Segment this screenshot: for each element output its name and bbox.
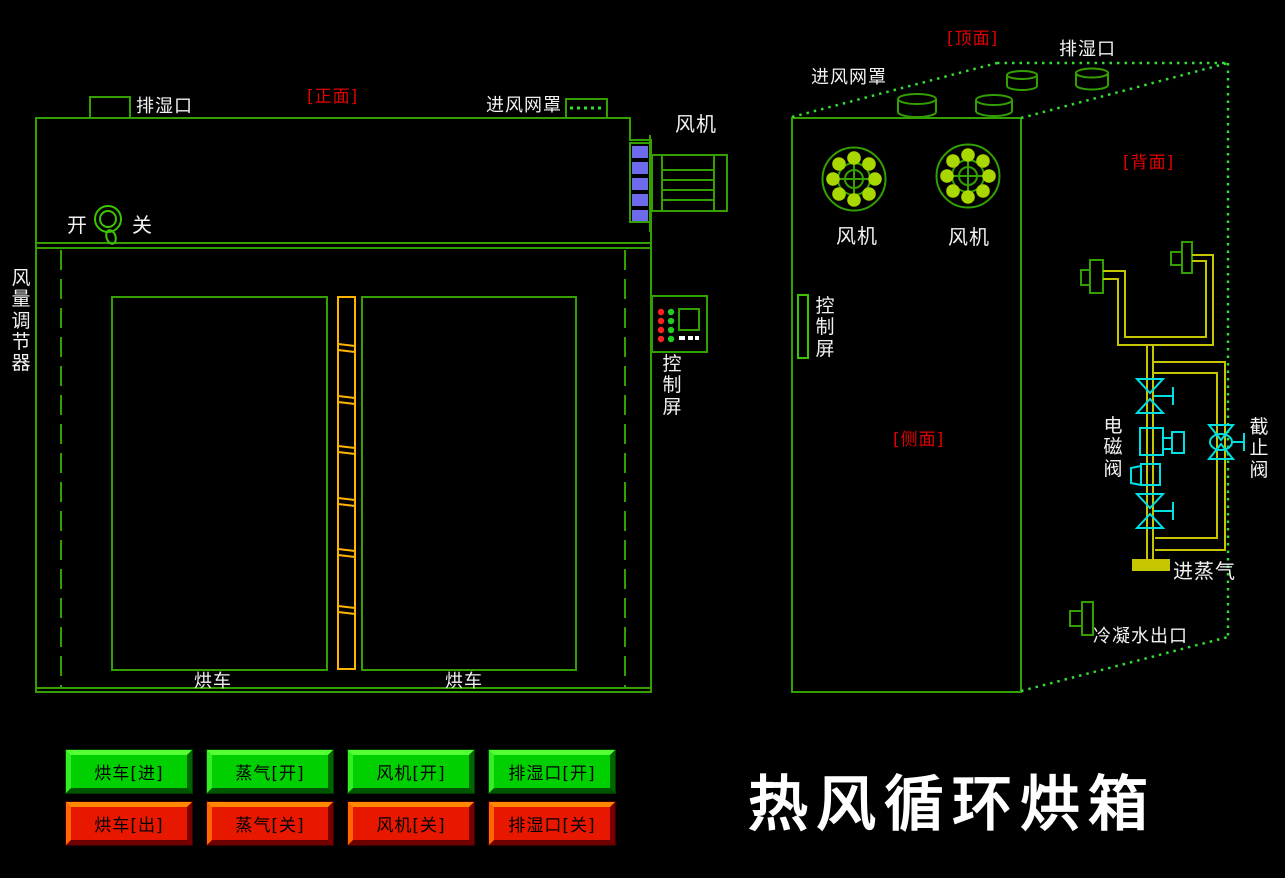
cart-left-label: 烘车 <box>194 667 232 693</box>
roof-cylinders <box>898 69 1108 118</box>
front-inlet-mesh-label: 进风网罩 <box>486 91 562 117</box>
top-face-label: [顶面] <box>947 24 998 49</box>
switch-off-label: 关 <box>132 209 153 238</box>
front-fan-label: 风机 <box>675 108 717 137</box>
panel-screen <box>679 309 699 330</box>
air-regulator-label: 风量调节器 <box>10 268 32 374</box>
door-right <box>362 297 576 670</box>
condensate-outlet-label: 冷凝水出口 <box>1093 622 1188 648</box>
control-panel <box>652 296 707 352</box>
panel-green-leds <box>668 309 674 342</box>
door-hinge-strip <box>338 297 355 669</box>
side-control-screen-label: 控制屏 <box>814 296 836 360</box>
panel-keys <box>679 336 699 340</box>
side-fan-left-label: 风机 <box>836 220 878 249</box>
front-exhaust-port-label: 排湿口 <box>136 92 193 118</box>
stop-valve-icon <box>1209 425 1244 459</box>
front-view-drawing <box>36 97 727 692</box>
side-control-screen <box>798 295 808 358</box>
fan-on-button[interactable]: 风机[开] <box>348 750 474 793</box>
side-exhaust-port-label: 排湿口 <box>1059 35 1116 61</box>
pipe-fitting-upper-left <box>1081 260 1103 293</box>
solenoid-valve-icon-lower <box>1137 494 1173 528</box>
fan-icon-right <box>937 145 1000 208</box>
steam-piping <box>1103 255 1225 570</box>
side-inlet-mesh-label: 进风网罩 <box>811 63 887 89</box>
panel-red-leds <box>658 309 664 342</box>
cylinder-icon <box>1007 71 1037 90</box>
side-view-drawing <box>792 63 1244 692</box>
cart-in-button[interactable]: 烘车[进] <box>66 750 192 793</box>
exhaust-port-box <box>90 97 130 117</box>
side-panel <box>792 118 1021 692</box>
oven-schematic <box>0 0 1285 878</box>
solenoid-valve-icon-upper <box>1137 379 1173 413</box>
condensate-outlet-fitting <box>1070 602 1093 635</box>
hinge-segments <box>338 344 355 614</box>
exhaust-close-button[interactable]: 排湿口[关] <box>489 802 615 845</box>
fan-off-button[interactable]: 风机[关] <box>348 802 474 845</box>
steam-close-button[interactable]: 蒸气[关] <box>207 802 333 845</box>
exhaust-open-button[interactable]: 排湿口[开] <box>489 750 615 793</box>
cylinder-icon <box>898 94 936 117</box>
fan-motor-icon <box>652 155 727 211</box>
switch-on-label: 开 <box>67 209 88 238</box>
cart-out-button[interactable]: 烘车[出] <box>66 802 192 845</box>
front-view-label: [正面] <box>307 82 358 107</box>
pipe-fitting-upper-right <box>1171 242 1192 273</box>
door-left <box>112 297 327 670</box>
back-face-label: [背面] <box>1123 148 1174 173</box>
power-switch-knob[interactable] <box>95 206 121 245</box>
cylinder-icon <box>1076 69 1108 90</box>
steam-inlet-label: 进蒸气 <box>1173 555 1236 584</box>
solenoid-body <box>1131 464 1160 485</box>
side-face-label: [侧面] <box>893 425 944 450</box>
fan-icon-left <box>823 148 886 211</box>
side-fan-right-label: 风机 <box>948 221 990 250</box>
page-title: 热风循环烘箱 <box>748 756 1156 843</box>
front-control-screen-label: 控制屏 <box>661 354 683 418</box>
cart-right-label: 烘车 <box>445 667 483 693</box>
fan-duct-stripes <box>632 146 648 221</box>
cylinder-icon <box>976 95 1012 116</box>
hmi-screen: 排湿口 [正面] 进风网罩 风机 开 关 风量调节器 控制屏 烘车 烘车 [顶面… <box>0 0 1285 878</box>
steam-inlet-flange <box>1133 560 1169 570</box>
stop-valve-label: 截止阀 <box>1248 417 1270 481</box>
solenoid-valve-label: 电磁阀 <box>1102 416 1124 480</box>
steam-open-button[interactable]: 蒸气[开] <box>207 750 333 793</box>
